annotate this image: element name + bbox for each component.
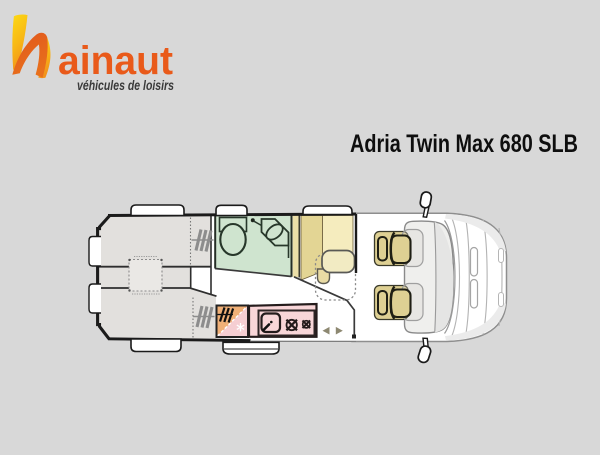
svg-text:véhicules de loisirs: véhicules de loisirs: [77, 78, 174, 93]
svg-text:ainaut: ainaut: [58, 39, 173, 83]
svg-text:Adria Twin Max 680 SLB: Adria Twin Max 680 SLB: [350, 130, 578, 158]
